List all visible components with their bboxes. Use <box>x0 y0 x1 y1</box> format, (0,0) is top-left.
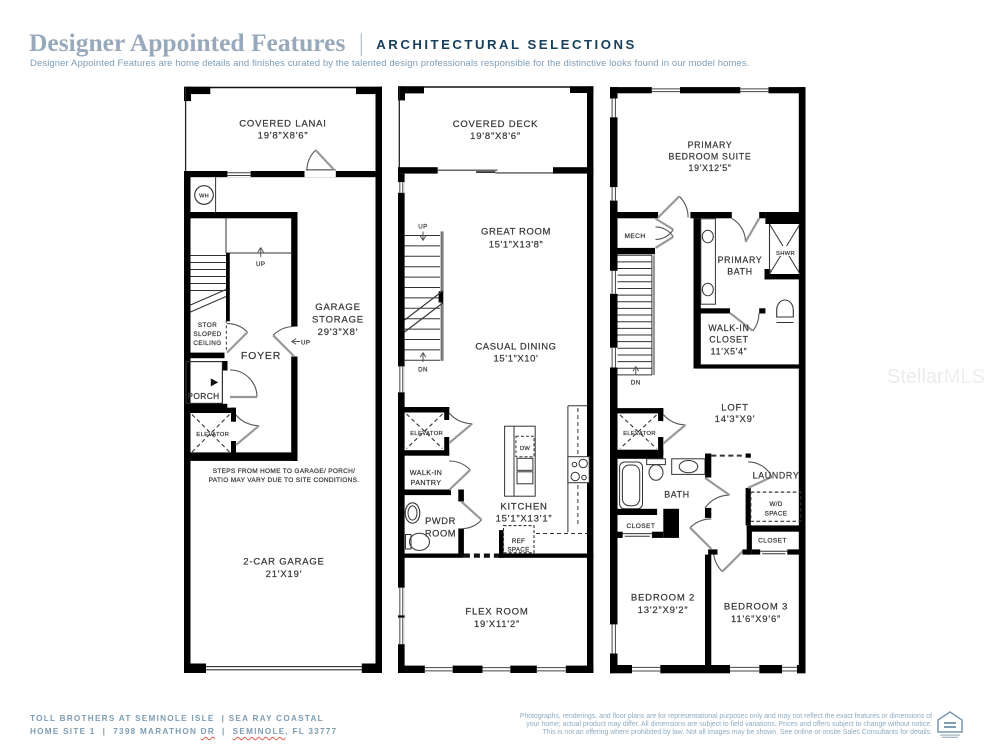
svg-text:CEILING: CEILING <box>193 340 221 347</box>
svg-text:SHWR: SHWR <box>776 251 795 257</box>
svg-text:CLOSET: CLOSET <box>627 523 656 530</box>
svg-text:FOYER: FOYER <box>241 350 281 362</box>
svg-text:CLOSET: CLOSET <box>709 335 748 345</box>
svg-text:PATIO MAY VARY DUE TO SITE CON: PATIO MAY VARY DUE TO SITE CONDITIONS. <box>209 477 360 484</box>
svg-text:19'8”X8'6”: 19'8”X8'6” <box>258 131 309 142</box>
svg-text:STORAGE: STORAGE <box>312 315 364 326</box>
svg-text:STOR: STOR <box>198 322 217 329</box>
svg-text:BEDROOM SUITE: BEDROOM SUITE <box>669 152 752 162</box>
svg-text:UP: UP <box>418 224 427 231</box>
svg-text:2-CAR GARAGE: 2-CAR GARAGE <box>243 557 324 568</box>
svg-text:DN: DN <box>631 380 641 387</box>
svg-text:SLOPED: SLOPED <box>193 331 221 338</box>
svg-text:PORCH: PORCH <box>187 391 219 401</box>
svg-text:BATH: BATH <box>727 267 753 277</box>
svg-text:11'6”X9'6”: 11'6”X9'6” <box>731 614 781 625</box>
svg-text:BEDROOM 2: BEDROOM 2 <box>631 593 695 604</box>
svg-text:19'X11'2”: 19'X11'2” <box>474 619 520 630</box>
svg-text:UP: UP <box>301 339 310 346</box>
svg-text:MECH: MECH <box>624 233 645 240</box>
svg-text:COVERED LANAI: COVERED LANAI <box>239 119 326 130</box>
svg-text:ROOM: ROOM <box>425 529 456 539</box>
svg-text:SPACE: SPACE <box>765 511 788 518</box>
svg-text:PANTRY: PANTRY <box>411 478 442 487</box>
svg-text:COVERED DECK: COVERED DECK <box>453 119 539 130</box>
svg-text:13'2”X9'2”: 13'2”X9'2” <box>638 605 689 616</box>
svg-text:GREAT ROOM: GREAT ROOM <box>481 227 551 238</box>
svg-text:15'1”X13'1”: 15'1”X13'1” <box>496 514 553 525</box>
svg-text:WALK-IN: WALK-IN <box>410 468 442 477</box>
svg-text:11'X5'4”: 11'X5'4” <box>711 347 748 357</box>
svg-text:ELEVATOR: ELEVATOR <box>410 431 443 437</box>
svg-text:ELEVATOR: ELEVATOR <box>623 431 656 437</box>
svg-text:SPACE: SPACE <box>507 547 529 554</box>
svg-text:LOFT: LOFT <box>721 403 748 414</box>
svg-text:29'3”X8': 29'3”X8' <box>318 327 359 338</box>
svg-text:FLEX ROOM: FLEX ROOM <box>465 607 528 618</box>
svg-text:19'8”X8'6”: 19'8”X8'6” <box>470 131 521 142</box>
svg-text:BATH: BATH <box>664 490 690 500</box>
svg-text:STEPS FROM HOME TO GARAGE/ POR: STEPS FROM HOME TO GARAGE/ PORCH/ <box>213 468 356 475</box>
svg-text:WALK-IN: WALK-IN <box>708 323 749 333</box>
svg-text:WH: WH <box>199 194 209 200</box>
svg-text:DW: DW <box>520 446 530 452</box>
svg-text:BEDROOM 3: BEDROOM 3 <box>724 602 788 613</box>
svg-text:14'3”X9': 14'3”X9' <box>715 414 756 425</box>
svg-text:DN: DN <box>418 367 428 374</box>
svg-text:19'X12'5”: 19'X12'5” <box>689 163 732 173</box>
svg-text:CASUAL DINING: CASUAL DINING <box>475 342 556 353</box>
svg-text:21'X19': 21'X19' <box>266 569 303 580</box>
svg-text:15'1”X10': 15'1”X10' <box>494 354 539 365</box>
svg-text:15'1”X13'8”: 15'1”X13'8” <box>489 240 544 251</box>
svg-text:GARAGE: GARAGE <box>315 302 360 313</box>
svg-text:ELEVATOR: ELEVATOR <box>196 432 229 438</box>
svg-text:PRIMARY: PRIMARY <box>718 255 763 265</box>
svg-text:REF: REF <box>512 538 525 545</box>
svg-text:LAUNDRY: LAUNDRY <box>753 471 800 481</box>
svg-text:PRIMARY: PRIMARY <box>688 140 733 150</box>
svg-text:CLOSET: CLOSET <box>758 538 787 545</box>
svg-text:KITCHEN: KITCHEN <box>500 502 547 513</box>
svg-text:PWDR: PWDR <box>425 516 456 526</box>
svg-text:UP: UP <box>256 261 265 268</box>
svg-text:W/D: W/D <box>769 501 782 508</box>
